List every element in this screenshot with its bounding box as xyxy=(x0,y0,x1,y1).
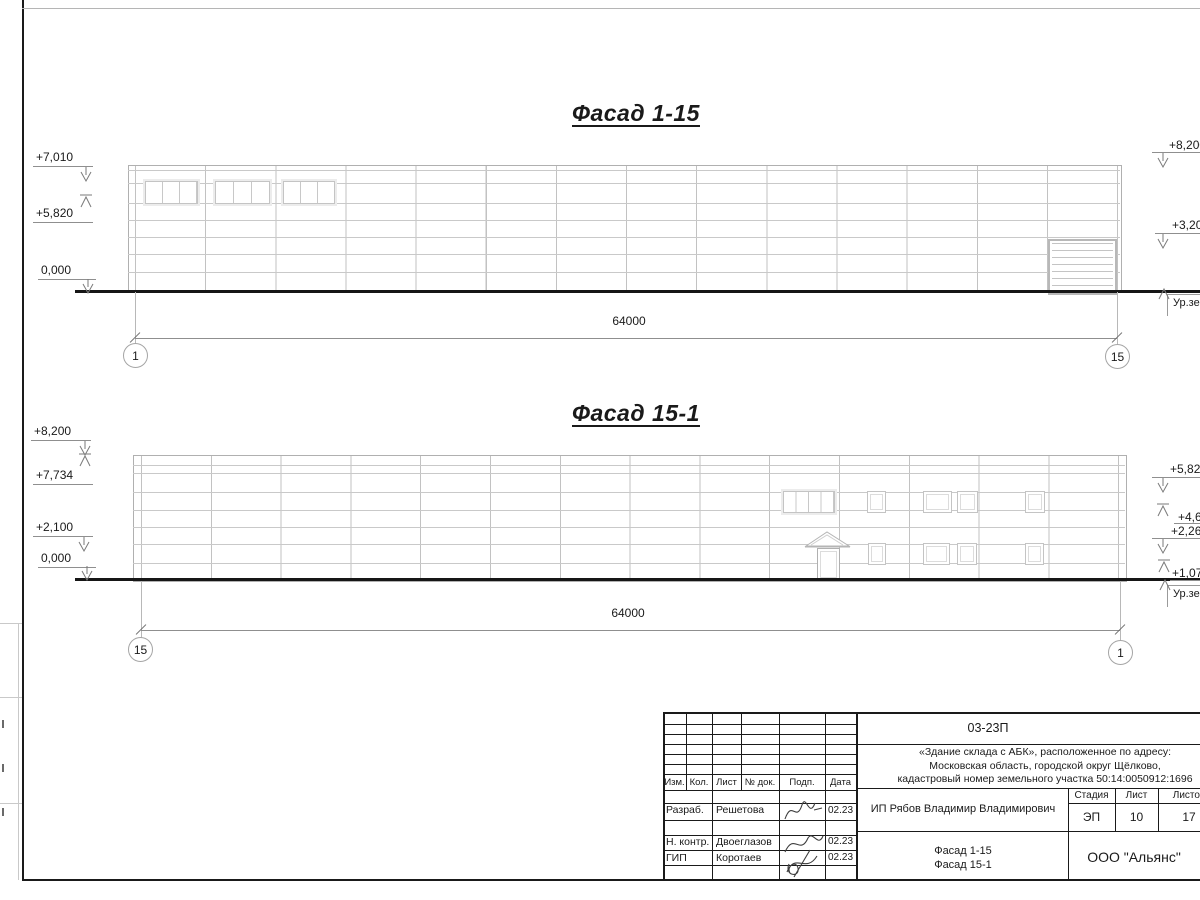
facade1-ribbon-window xyxy=(283,181,335,204)
titleblock-line xyxy=(663,744,857,745)
dimension-label: 64000 xyxy=(569,314,689,328)
elevation-mark-label: +3,200 xyxy=(1172,218,1200,232)
window-inner-frame xyxy=(960,546,974,562)
facade2-window xyxy=(1025,491,1045,513)
titleblock-border-left xyxy=(663,712,665,880)
titleblock-line xyxy=(663,790,857,791)
sheet-frame-top xyxy=(22,8,1200,9)
grid-bubble: 15 xyxy=(128,637,153,662)
doc-number: 03-23П xyxy=(857,721,1119,735)
facade2-panel-line xyxy=(133,527,1125,528)
elevation-mark-label: +2,260 xyxy=(1171,524,1200,538)
facade1-panel-line xyxy=(128,203,1120,204)
titleblock-line xyxy=(712,712,713,880)
facade2-window xyxy=(923,491,952,513)
sheets-total-label: Листов xyxy=(1158,790,1200,801)
stage-value: ЭП xyxy=(1068,810,1115,824)
window-inner-frame xyxy=(871,546,883,562)
elevation-mark-label: +7,010 xyxy=(36,150,73,164)
elevation-mark-label: +7,734 xyxy=(36,468,73,482)
facade1-panel-line xyxy=(128,220,1120,221)
titleblock-divider xyxy=(856,712,858,880)
elevation-mark-leader xyxy=(33,222,93,223)
facade2-window xyxy=(868,543,886,565)
sheet-label: Лист xyxy=(1115,790,1158,801)
window-inner-frame xyxy=(1028,546,1041,562)
client-name: ИП Рябов Владимир Владимирович xyxy=(860,803,1066,815)
row-name: Решетова xyxy=(716,804,764,816)
elevation-mark-label: +2,100 xyxy=(36,520,73,534)
header-podp: Подп. xyxy=(779,777,825,788)
signature-scribble xyxy=(780,830,826,878)
elevation-mark-label: 0,000 xyxy=(41,551,71,565)
titleblock-line xyxy=(663,774,857,775)
facade2-panel-line xyxy=(133,465,1125,466)
elevation-mark-label: +5,820 xyxy=(36,206,73,220)
sheet-frame-left xyxy=(22,0,24,881)
facade1-panel-line xyxy=(128,183,1120,184)
elevation-arrow-down-icon xyxy=(1157,234,1169,249)
facade1-gate-slats xyxy=(1052,243,1113,291)
elevation-arrow-up-icon xyxy=(1157,503,1169,518)
row-role: ГИП xyxy=(666,852,687,864)
facade1-panel-line xyxy=(128,237,1120,238)
titleblock-line xyxy=(857,744,1200,745)
titleblock-line xyxy=(663,865,857,866)
facade2-panel-line xyxy=(133,473,1125,474)
elevation-arrow-down-icon xyxy=(1157,539,1169,554)
facade2-window xyxy=(867,491,886,513)
facade1-ribbon-window xyxy=(145,181,198,204)
facade1-panel-line xyxy=(128,254,1120,255)
titleblock-line xyxy=(1068,803,1200,804)
dimension-label: 64000 xyxy=(568,606,688,620)
grid-bubble: 1 xyxy=(123,343,148,368)
dimension-line xyxy=(135,338,1117,339)
elevation-mark-label: 0,000 xyxy=(41,263,71,277)
facade1-gate xyxy=(1048,239,1117,295)
margin-clipped-text xyxy=(2,808,4,816)
titleblock-line xyxy=(663,734,857,735)
grid-bubble: 1 xyxy=(1108,640,1133,665)
dimension-line xyxy=(141,630,1120,631)
elevation-arrow-down-icon xyxy=(1157,153,1169,168)
elevation-mark-label: +8,200 xyxy=(34,424,71,438)
window-inner-frame xyxy=(1028,494,1042,510)
ground-label: Ур.земли xyxy=(1173,588,1200,600)
titleblock-line xyxy=(663,724,857,725)
row-role: Н. контр. xyxy=(666,836,709,848)
description-line: Московская область, городской округ Щёлк… xyxy=(880,760,1200,774)
sheet-title-line: Фасад 15-1 xyxy=(860,858,1066,872)
facade1-title: Фасад 1-15 xyxy=(460,100,812,127)
facade1-ground-line xyxy=(75,290,1200,293)
facade2-window xyxy=(1025,543,1044,565)
sheets-total-value: 17 xyxy=(1158,810,1200,824)
extension-line xyxy=(1117,292,1118,348)
row-name: Двоеглазов xyxy=(716,836,772,848)
window-inner-frame xyxy=(960,494,975,510)
window-inner-frame xyxy=(870,494,883,510)
elevation-arrow-down-icon xyxy=(80,167,92,182)
elevation-mark-label: +1,070 xyxy=(1172,566,1200,580)
organization-name: ООО "Альянс" xyxy=(1068,849,1200,865)
elevation-mark-label: +5,820 xyxy=(1170,462,1200,476)
extension-line xyxy=(1120,581,1121,641)
facade1-building xyxy=(128,165,1122,293)
grid-bubble: 15 xyxy=(1105,344,1130,369)
elevation-mark-leader xyxy=(33,484,93,485)
ground-label: Ур.земли xyxy=(1173,297,1200,309)
facade2-ground-line xyxy=(75,578,1200,581)
sheet-title-line: Фасад 1-15 xyxy=(860,844,1066,858)
facade2-title: Фасад 15-1 xyxy=(460,400,812,427)
facade2-window xyxy=(957,543,977,565)
titleblock-line xyxy=(663,754,857,755)
row-role: Разраб. xyxy=(666,804,704,816)
titleblock-border-top xyxy=(663,712,1200,714)
elevation-arrow-down-icon xyxy=(1157,478,1169,493)
header-data: Дата xyxy=(825,777,856,788)
description-line: «Здание склада с АБК», расположенное по … xyxy=(880,746,1200,760)
titleblock-line xyxy=(663,820,857,821)
signature-scribble xyxy=(782,793,824,825)
sheet-frame-bottom xyxy=(22,879,1200,881)
elevation-arrow-down-icon xyxy=(81,566,93,581)
header-doc: № док. xyxy=(741,777,779,788)
description-line: кадастровый номер земельного участка 50:… xyxy=(880,773,1200,787)
facade2-door xyxy=(817,548,840,581)
elevation-arrow-up-icon xyxy=(1159,578,1171,591)
facade1-panel-line xyxy=(128,170,1120,171)
titleblock-line xyxy=(663,850,857,851)
extension-line xyxy=(135,292,136,348)
door-inner-frame xyxy=(820,551,837,578)
facade2-window xyxy=(923,543,950,565)
elevation-mark-label: +8,200 xyxy=(1169,138,1200,152)
header-list: Лист xyxy=(712,777,741,788)
header-kol: Кол. xyxy=(686,777,712,788)
sheet-value: 10 xyxy=(1115,810,1158,824)
facade1-panel-line xyxy=(128,272,1120,273)
facade1-ribbon-window xyxy=(215,181,270,204)
elevation-arrow-up-icon xyxy=(1158,559,1170,574)
titleblock-line xyxy=(663,764,857,765)
sheet-title: Фасад 1-15 Фасад 15-1 xyxy=(860,844,1066,872)
row-date: 02.23 xyxy=(825,836,856,847)
project-description: «Здание склада с АБК», расположенное по … xyxy=(880,746,1200,787)
titleblock-line xyxy=(857,831,1200,832)
header-izm: Изм. xyxy=(663,777,686,788)
elevation-mark-leader xyxy=(1170,580,1200,581)
window-inner-frame xyxy=(926,494,949,510)
margin-line-vertical xyxy=(18,623,19,880)
titleblock-line xyxy=(1068,788,1069,880)
elevation-arrow-up-icon xyxy=(79,453,91,468)
margin-clipped-text xyxy=(2,720,4,728)
facade2-ribbon-window xyxy=(783,491,835,513)
elevation-mark-label: +4,630 xyxy=(1178,510,1200,524)
margin-clipped-text xyxy=(2,764,4,772)
elevation-arrow-down-icon xyxy=(78,537,90,552)
facade2-window xyxy=(957,491,978,513)
elevation-arrow-down-icon xyxy=(82,279,94,294)
elevation-arrow-up-icon xyxy=(1158,287,1170,300)
row-name: Коротаев xyxy=(716,852,761,864)
titleblock-line xyxy=(857,788,1200,789)
window-inner-frame xyxy=(926,546,947,562)
row-date: 02.23 xyxy=(825,805,856,816)
elevation-arrow-up-icon xyxy=(80,194,92,209)
stage-label: Стадия xyxy=(1068,790,1115,801)
row-date: 02.23 xyxy=(825,852,856,863)
door-pediment xyxy=(805,529,850,548)
